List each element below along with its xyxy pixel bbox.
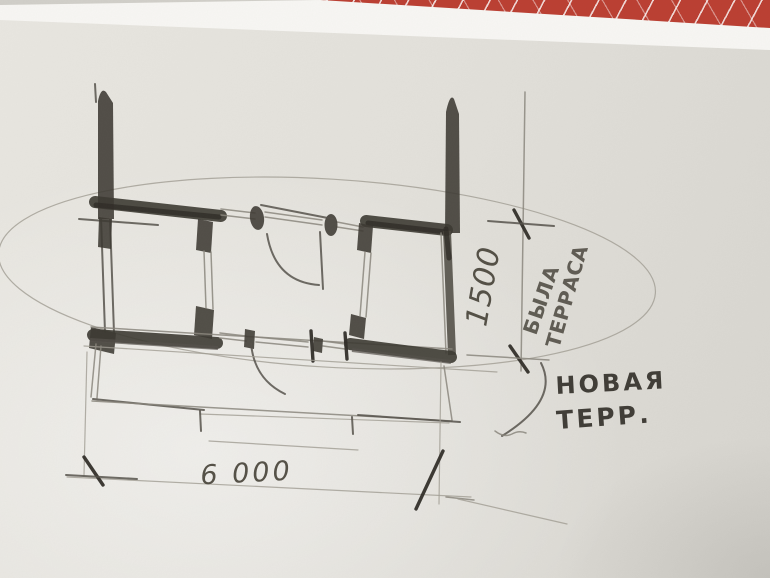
pencil-sketch: 6 000 1500 БЫЛА ТЕРРАСА НОВАЯ ТЕРР. <box>0 0 770 578</box>
paper-grain-texture <box>0 0 770 578</box>
photo-of-sketch: 6 000 1500 БЫЛА ТЕРРАСА НОВАЯ ТЕРР. <box>0 0 770 578</box>
